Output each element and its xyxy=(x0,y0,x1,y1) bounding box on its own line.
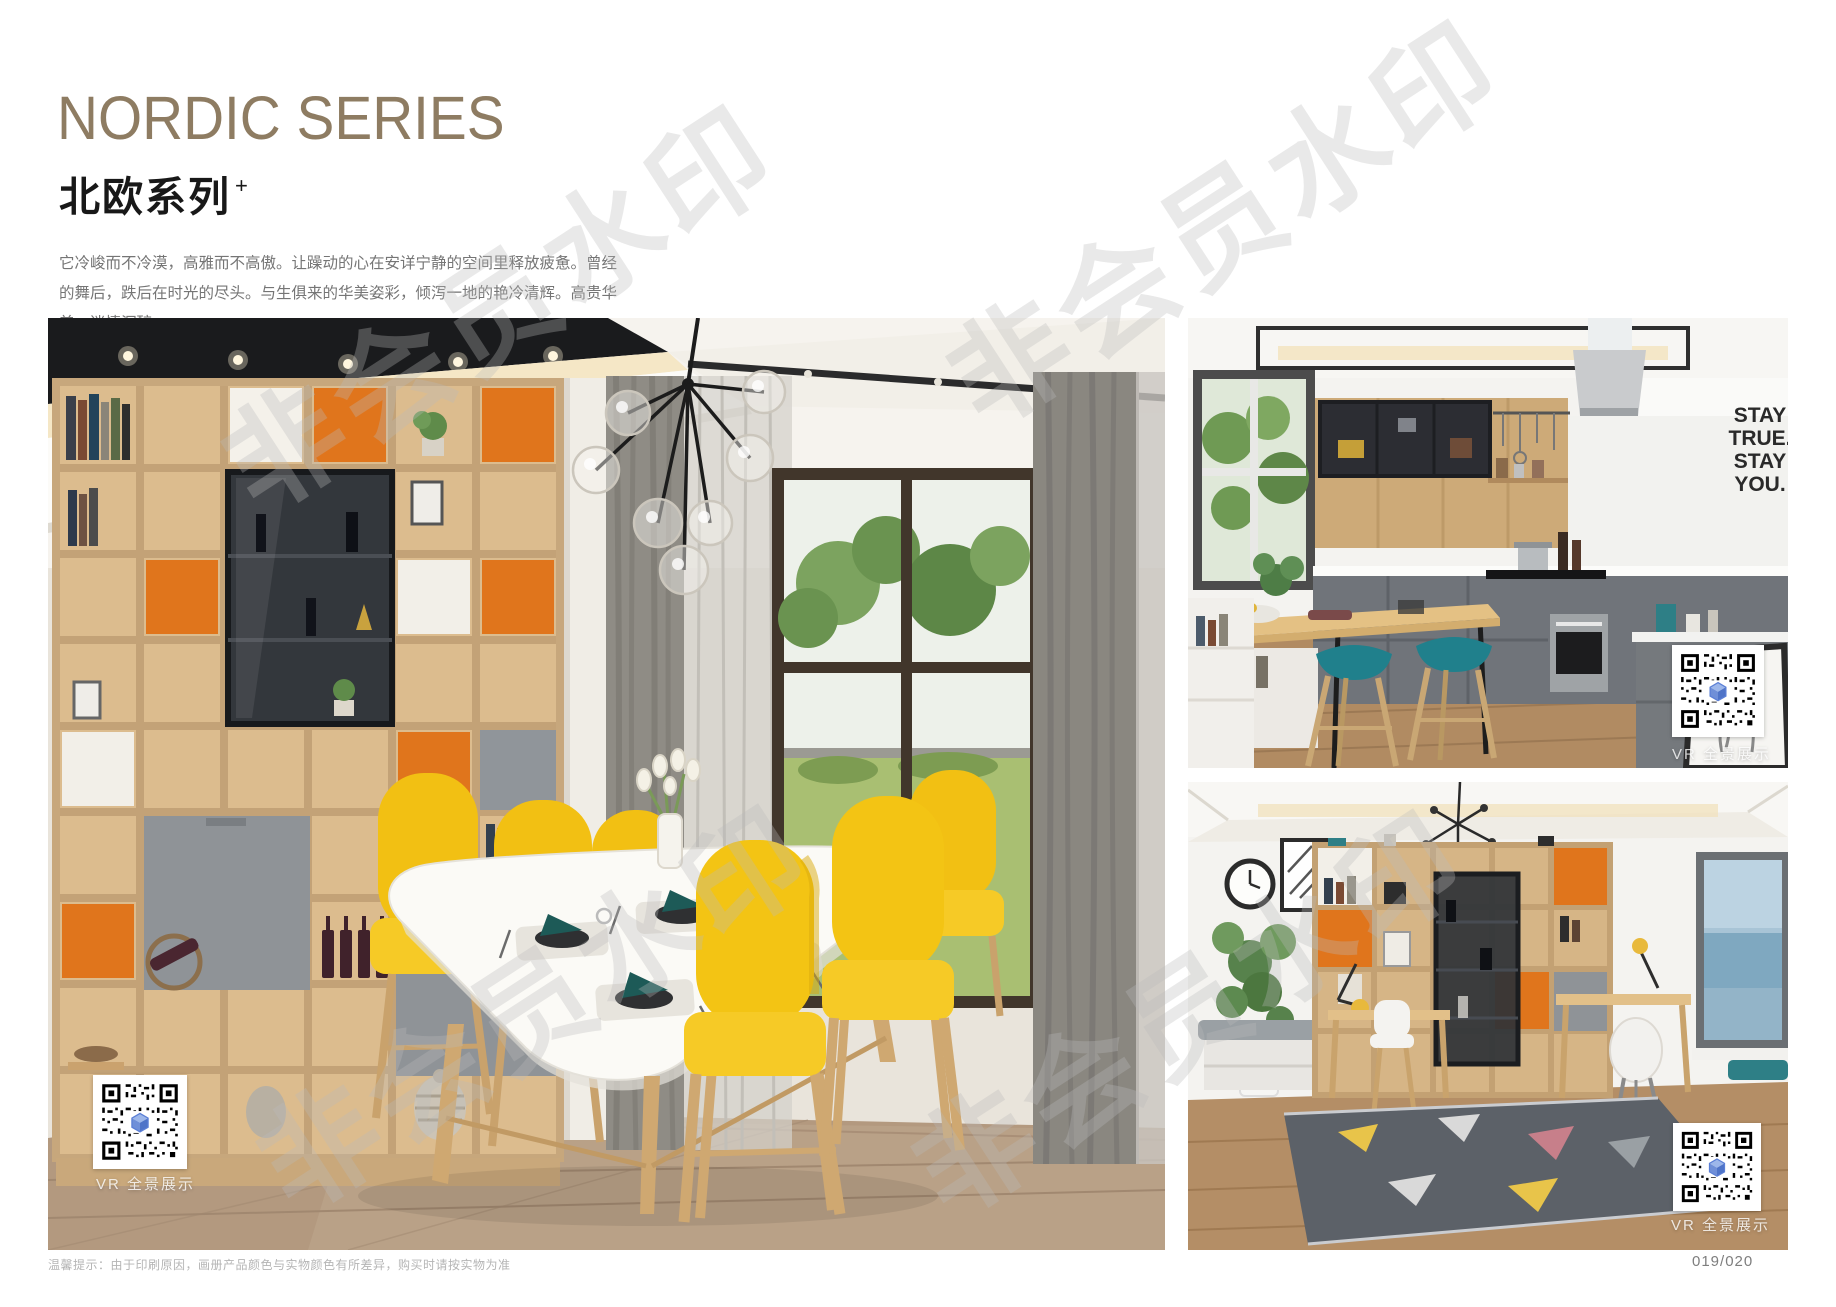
vr-qr-code xyxy=(1673,1123,1761,1211)
vr-label: VR 全景展示 xyxy=(96,1173,195,1194)
ceiling xyxy=(1188,318,1788,378)
vr-label: VR 全景展示 xyxy=(1672,743,1771,764)
series-title-cn: 北欧系列+ xyxy=(59,163,657,223)
series-title-cn-text: 北欧系列 xyxy=(59,174,231,220)
footer-disclaimer: 温馨提示：由于印刷原因，画册产品颜色与实物颜色有所差异，购买时请按实物为准 xyxy=(48,1256,511,1273)
built-in-oven xyxy=(1550,614,1608,692)
bench xyxy=(1198,1020,1330,1090)
curtains-right xyxy=(1033,372,1165,1164)
vr-qr-code xyxy=(93,1075,187,1169)
qr-code-graphic xyxy=(97,1079,183,1165)
wall-quote-line1: STAY xyxy=(1734,404,1787,427)
study-room-photo: VR 全景展示 xyxy=(1188,782,1788,1250)
qr-code-graphic xyxy=(1676,649,1760,733)
vr-cube-logo xyxy=(1710,683,1726,701)
series-title-plus: + xyxy=(235,173,250,198)
catalog-page: NORDIC SERIES 北欧系列+ 它冷峻而不冷漠，高雅而不高傲。让躁动的心… xyxy=(0,0,1836,1307)
vr-label: VR 全景展示 xyxy=(1671,1214,1770,1235)
qr-code-graphic xyxy=(1677,1127,1757,1207)
vr-qr-code xyxy=(1672,645,1764,737)
wall-clock xyxy=(1227,861,1273,907)
ceiling xyxy=(1188,782,1788,842)
upper-glass-cabinets xyxy=(1320,402,1490,476)
vr-cube-logo xyxy=(132,1113,148,1132)
page-number: 019/020 xyxy=(1692,1253,1753,1270)
display-case xyxy=(1436,874,1518,1064)
wall-quote-line3: STAY xyxy=(1734,450,1787,473)
dining-room-illustration xyxy=(48,318,1165,1250)
series-title-en: NORDIC SERIES xyxy=(57,88,615,149)
dining-room-photo: VR 全景展示 xyxy=(48,318,1165,1250)
vr-cube-logo xyxy=(1709,1159,1724,1176)
wall-quote-line4: YOU. xyxy=(1734,473,1785,496)
wall-quote-line2: TRUE. xyxy=(1729,427,1789,450)
glass-cabinet xyxy=(228,472,392,724)
window-sea-view xyxy=(1692,852,1788,1080)
kitchen-photo: STAY TRUE. STAY YOU. xyxy=(1188,318,1788,768)
wall-quote: STAY TRUE. STAY YOU. xyxy=(1729,404,1789,496)
